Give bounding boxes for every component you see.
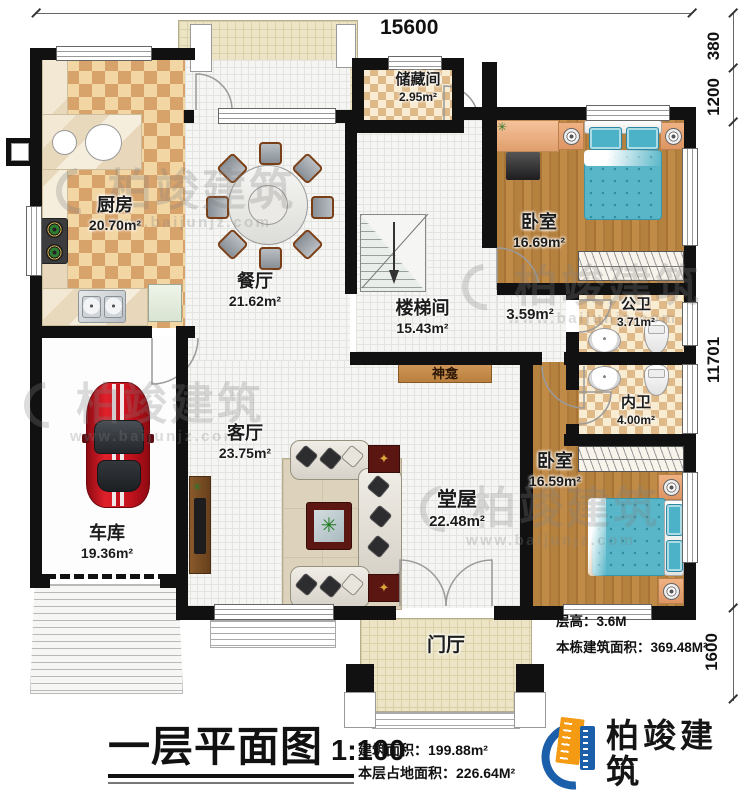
wall [684,561,696,620]
note-building-area: 本栋建筑面积：369.48M² [556,636,708,656]
entrance-door-arc [446,560,492,606]
wall [566,332,579,390]
window [26,206,42,276]
door-arc [152,338,198,384]
wall [497,283,684,295]
wall [30,338,42,586]
window [218,108,336,124]
room-label-stairwell: 楼梯间 15.43m² [375,297,470,337]
room-label-public-bath: 公卫 3.71m² [598,296,674,330]
wall [176,606,216,620]
flue-shaft-inner [11,143,29,161]
stair-arrow-icon [389,270,399,284]
wall [452,107,588,120]
room-label-bedroom-top: 卧室 16.69m² [484,211,594,251]
wall [566,283,579,300]
window [56,46,152,61]
wall [564,434,696,446]
room-label-private-bath: 内卫 4.00m² [598,394,674,428]
window [586,105,670,121]
floor-plan: 15600 380 1200 11701 1600 ✳ [0,0,750,792]
wall [30,574,50,588]
porch-column [516,664,544,692]
dim-right-380: 380 [704,32,724,60]
dim-top-label: 15600 [380,16,438,40]
brand-logo: 柏竣建筑 www.baijunjz.com [540,714,745,786]
title-underline [108,774,354,784]
wall [684,118,696,150]
room-label-storage: 储藏间 2.95m² [374,71,462,105]
porch-column [346,664,374,692]
wall [184,110,194,123]
title-text: 一层平面图 [108,726,323,768]
wall [352,120,464,133]
entrance-door-arc [400,560,446,606]
room-label-bedroom-bottom: 卧室 16.59m² [500,450,610,490]
window [388,56,442,70]
floor-area-text: 建筑面积：199.88m² [358,740,488,760]
dim-right-11701: 11701 [704,337,724,383]
wall [350,352,542,365]
logo-building-blue-icon [580,726,595,770]
garage-door [46,574,168,579]
dim-right-1200: 1200 [704,78,724,116]
footprint-area-text: 本层占地面积：226.64M² [358,763,515,783]
wall [30,48,42,338]
wall [494,606,534,620]
window [682,364,698,434]
note-floor-height: 层高：3.6M [556,610,627,630]
room-label-living: 客厅 23.75m² [190,422,300,462]
room-label-corridor: 3.59m² [494,306,566,325]
wall [176,326,188,620]
dimension-line-right [733,13,734,701]
window [214,604,334,620]
wall [564,352,696,365]
room-label-hall: 堂屋 22.48m² [402,488,512,532]
logo-brand-text: 柏竣建筑 [606,718,750,791]
door-arc [196,74,232,110]
room-label-dining: 餐厅 21.62m² [200,270,310,310]
window [682,302,698,346]
room-label-garage: 车库 19.36m² [52,522,162,562]
wall [684,244,696,304]
room-label-foyer: 门厅 [396,634,496,658]
wall [332,606,396,620]
wall [668,107,696,120]
room-label-kitchen: 厨房 20.70m² [60,194,170,234]
wall [30,326,152,338]
wall [345,120,357,294]
window [682,472,698,563]
dimension-line-top [36,13,692,14]
window [682,148,698,246]
